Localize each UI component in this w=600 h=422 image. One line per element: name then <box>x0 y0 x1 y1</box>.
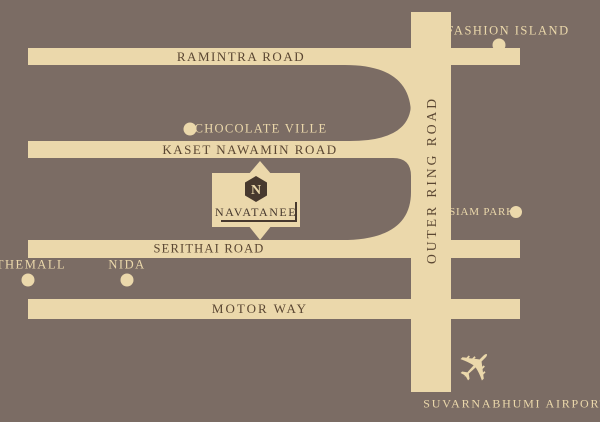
the-mall-label: THEMALL <box>0 258 66 273</box>
navatanee-location-map: RAMINTRA ROAD KASET NAWAMIN ROAD SERITHA… <box>0 0 600 422</box>
navatanee-logo-icon: N <box>243 175 269 203</box>
nida-dot-icon <box>121 274 134 287</box>
serithai-road-label: SERITHAI ROAD <box>153 242 264 257</box>
badge-name: NAVATANEE <box>212 205 300 220</box>
the-mall-dot-icon <box>22 274 35 287</box>
ramintra-road-label: RAMINTRA ROAD <box>177 49 305 65</box>
fillet-kaset-upper-junction <box>350 103 411 141</box>
badge-underline <box>221 220 297 222</box>
suvarnabhumi-airport-label: SUVARNABHUMI AIRPORT <box>423 397 600 412</box>
logo-letter: N <box>251 183 261 198</box>
nida-label: NIDA <box>108 258 145 273</box>
fashion-island-dot-icon <box>493 39 506 52</box>
navatanee-badge: N NAVATANEE <box>212 173 300 227</box>
kaset-nawamin-road-label: KASET NAWAMIN ROAD <box>162 142 337 158</box>
fillet-ramintra-junction <box>345 65 411 115</box>
chocolate-ville-label: CHOCOLATE VILLE <box>195 122 328 137</box>
fillet-serithai-junction <box>342 192 411 240</box>
motor-way-label: MOTOR WAY <box>212 301 308 317</box>
fillet-kaset-lower-junction <box>393 158 411 176</box>
serithai-road-band <box>28 240 520 258</box>
badge-pointer-down-icon <box>248 225 272 240</box>
siam-park-label: SIAM PARK <box>449 206 515 218</box>
fashion-island-label: FASHION ISLAND <box>446 24 569 39</box>
outer-ring-road-label: OUTER RING ROAD <box>424 96 440 264</box>
badge-right-tick <box>295 202 297 222</box>
